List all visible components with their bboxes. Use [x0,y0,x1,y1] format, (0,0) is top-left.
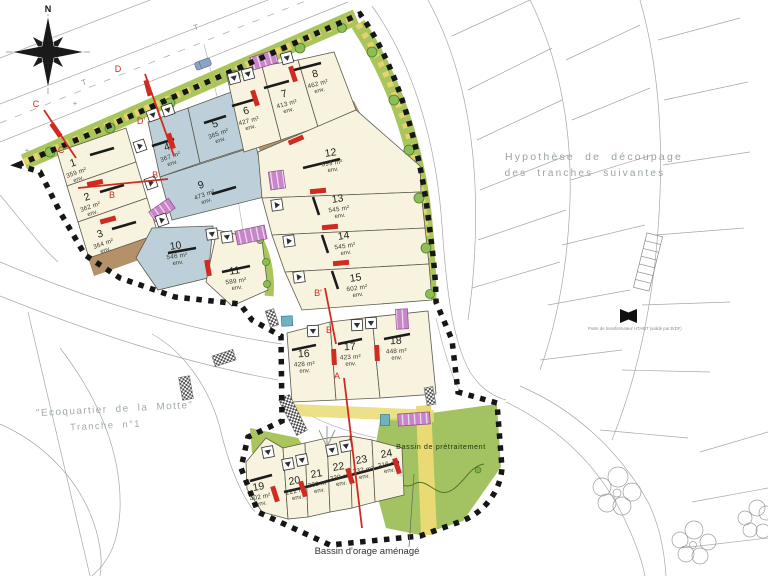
future-tree-icon [593,467,641,515]
hypothese-label-line2: des tranches suivantes [505,168,666,179]
section-label-B: B [109,190,115,200]
red-wall-bar [331,349,337,365]
access-marker-icon [227,71,240,84]
lot-number: 19 [252,480,266,494]
lot-env: env. [299,368,310,375]
site-plan-map: 1359 m²env.2362 m²env.3364 m²env.4367 m²… [0,0,768,576]
utility-box-icon [381,415,390,426]
survey-cross-icon: + [25,146,30,155]
compass-rose: N [6,4,90,94]
hypothese-label-line1: Hypothèse de découpage [505,151,683,163]
lot-area: 448 m² [386,347,407,355]
section-label-B: B [326,325,332,335]
crosswalk [265,309,279,328]
utility-box-icon [281,316,293,327]
section-label-D: D [115,64,122,74]
lot-number: 11 [228,264,241,277]
access-marker-icon [206,228,218,240]
access-marker-icon [271,199,283,211]
lot-number: 14 [337,229,350,243]
bassin-orage-label: Bassin d'orage aménagé [315,546,420,557]
section-label-Cp: C' [58,145,66,155]
lot-number: 10 [169,239,182,253]
section-label-A: A [334,371,340,381]
utility-pole-icon: T [192,22,200,32]
crosswalk [212,349,236,366]
lot-number: 21 [310,467,324,481]
tree-icon [404,145,414,155]
lot-number: 12 [324,146,337,160]
lot-13: 13545 m²env. [262,192,425,235]
lot-env: env. [345,361,356,368]
access-marker-icon [296,454,309,467]
section-label-Bp: B' [314,288,322,298]
section-label-C: C [33,99,40,109]
lot-area: 428 m² [294,360,315,368]
access-marker-icon [326,444,339,457]
utility-pole-icon: T [80,77,88,87]
tree-icon [264,281,271,288]
access-marker-icon [280,51,293,64]
parking-purple [398,412,431,426]
access-marker-icon [283,235,295,247]
access-marker-icon [133,139,147,153]
tree-icon [367,47,377,57]
crosswalk [179,376,194,401]
shrub-icon [475,467,481,473]
transformer-icon [620,309,637,323]
access-marker-icon [293,271,305,283]
lot-number: 22 [332,460,346,474]
lot-23: 23232 m²env. [350,436,375,508]
north-label: N [45,4,52,14]
access-marker-icon [241,67,254,80]
ecoquartier-label-line1: "Ecoquartier de la Motte" [36,400,194,419]
access-marker-icon [262,446,275,459]
lot-number: 13 [331,192,344,206]
lot-area: 423 m² [340,353,361,361]
access-marker-icon [351,319,363,331]
red-wall-bar [374,345,380,361]
car-icon [194,57,212,70]
tree-icon [389,95,399,105]
access-marker-icon [365,317,377,329]
lot-number: 16 [298,348,310,361]
transformer-note: Poste de transformateur HTA/BT (validé p… [588,326,682,331]
section-label-Bp: B' [152,170,160,180]
access-marker-icon [307,325,319,337]
lot-env: env. [391,355,402,362]
section-label-Dp: D' [137,116,145,126]
parking-purple [395,309,408,330]
lot-10: 10546 m²env. [136,226,213,290]
tree-icon [263,259,270,266]
future-tree-icon [672,521,716,564]
lot-number: 17 [344,341,356,354]
parking-strip-outline [633,233,662,291]
bassin-pretraitement-label: Bassin de prétraitement [396,442,486,451]
lot-number: 18 [390,335,402,348]
site-plan-page: 1359 m²env.2362 m²env.3364 m²env.4367 m²… [0,0,768,576]
lot-number: 23 [355,453,369,467]
access-marker-icon [221,231,233,243]
parking-purple [268,170,285,190]
lot-number: 24 [380,447,394,461]
ecoquartier-label-line2: Tranche n°1 [70,419,141,434]
future-tree-icon [738,500,768,538]
lot-number: 15 [349,271,362,285]
lot-15: 15602 m²env. [285,264,432,310]
access-marker-icon [340,440,353,453]
access-marker-icon [282,458,295,471]
survey-cross-icon: + [73,99,78,108]
